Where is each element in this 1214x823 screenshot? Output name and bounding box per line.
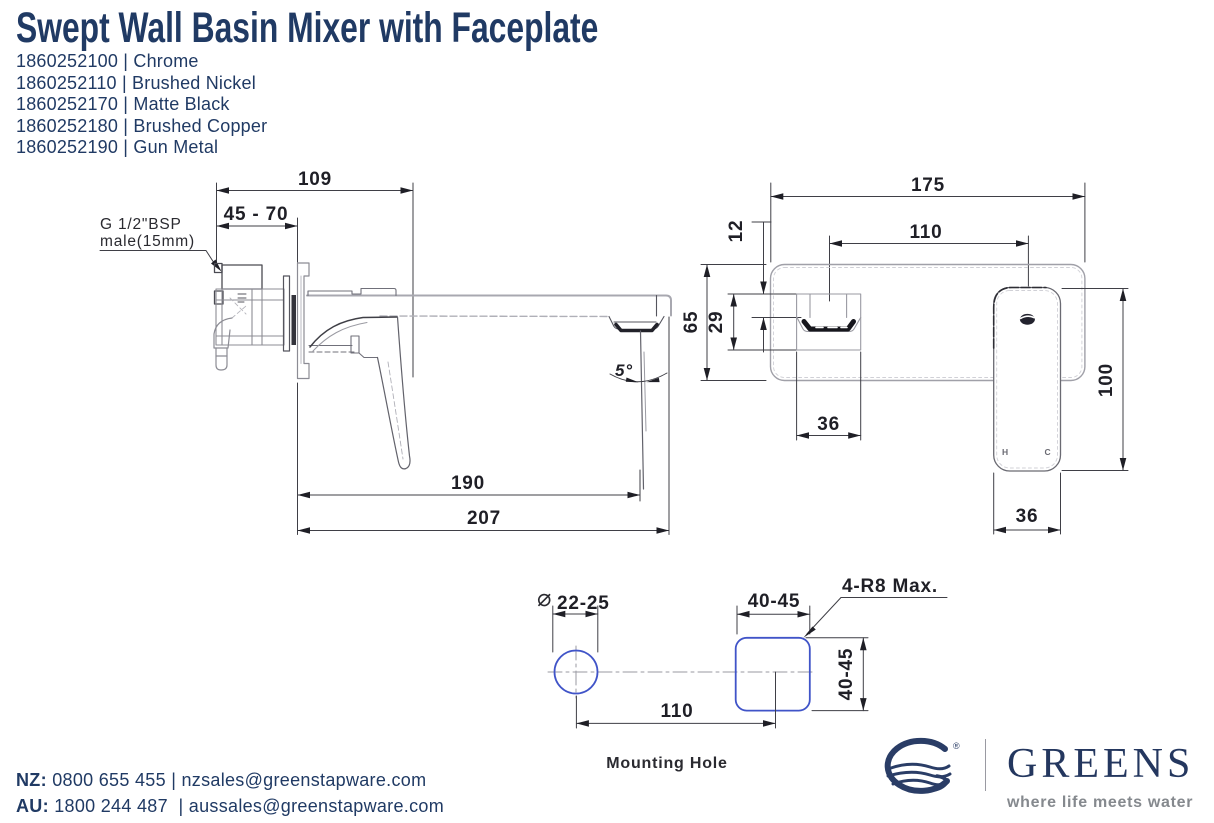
svg-text:100: 100 [1096, 363, 1117, 397]
svg-text:®: ® [953, 741, 960, 751]
svg-text:40-45: 40-45 [748, 591, 801, 612]
svg-text:109: 109 [298, 169, 332, 190]
svg-text:36: 36 [817, 414, 840, 435]
svg-text:22-25: 22-25 [557, 593, 610, 614]
svg-text:207: 207 [467, 508, 501, 529]
svg-text:12: 12 [726, 220, 747, 243]
svg-text:110: 110 [909, 222, 942, 243]
svg-text:male(15mm): male(15mm) [100, 233, 195, 250]
svg-text:65: 65 [681, 311, 702, 334]
svg-text:5°: 5° [615, 361, 633, 380]
svg-text:C: C [1045, 447, 1052, 457]
svg-text:H: H [1002, 447, 1009, 457]
svg-text:175: 175 [911, 175, 945, 196]
svg-text:29: 29 [706, 311, 727, 334]
svg-text:36: 36 [1016, 506, 1039, 527]
svg-text:⌀: ⌀ [537, 585, 552, 612]
svg-text:110: 110 [660, 701, 693, 722]
svg-text:G 1/2"BSP: G 1/2"BSP [100, 216, 182, 233]
svg-text:45 - 70: 45 - 70 [224, 204, 289, 225]
svg-text:190: 190 [451, 473, 485, 494]
svg-text:40-45: 40-45 [836, 648, 857, 701]
svg-text:4-R8 Max.: 4-R8 Max. [842, 576, 938, 597]
svg-text:Mounting Hole: Mounting Hole [606, 755, 728, 772]
